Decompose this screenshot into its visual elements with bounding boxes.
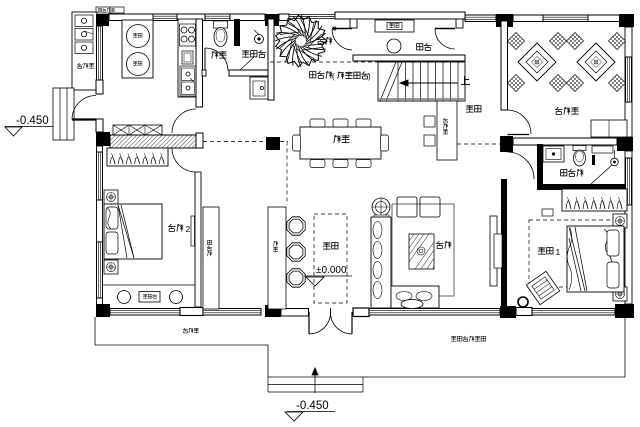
svg-text:(: ( bbox=[332, 72, 335, 81]
svg-text:): ) bbox=[368, 72, 371, 81]
svg-text:2: 2 bbox=[186, 224, 191, 234]
svg-text:1: 1 bbox=[556, 247, 561, 257]
svg-text:-0.450: -0.450 bbox=[296, 400, 329, 412]
svg-text:±0.000: ±0.000 bbox=[316, 265, 347, 276]
svg-text:-0.450: -0.450 bbox=[16, 115, 49, 127]
